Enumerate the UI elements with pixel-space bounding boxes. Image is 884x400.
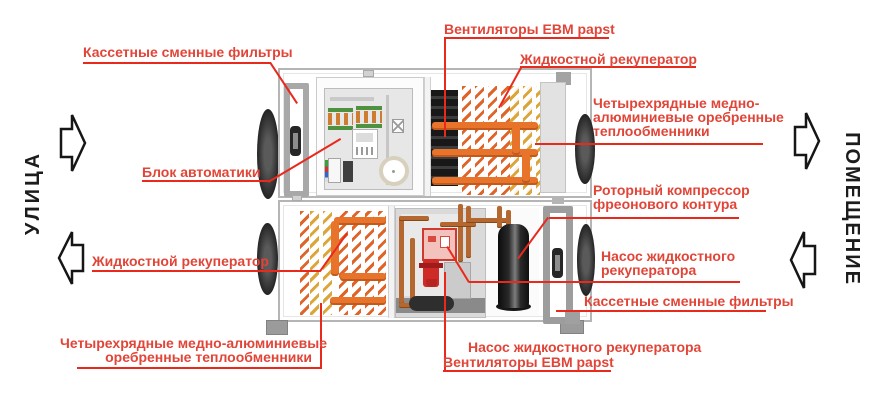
leader-hx-bottom-underline	[77, 367, 322, 369]
leader-filters-top-underline	[83, 62, 271, 64]
coil-bend-pipe-2	[522, 151, 530, 183]
coil-header-pipe-1	[432, 122, 538, 130]
controller-display	[356, 133, 373, 142]
terminal-strip-b	[356, 106, 382, 110]
premises-label: ПОМЕЩЕНИЕ	[840, 119, 864, 299]
wiring-diagram-plate	[392, 119, 404, 133]
coil-b-header-pipe-1	[334, 217, 386, 225]
thermostat-dial-center	[392, 170, 395, 173]
indicator-strip	[325, 160, 328, 182]
copper-pipe-3	[399, 216, 429, 221]
plate-hx-mark	[428, 236, 436, 242]
terminal-strip-b2	[356, 124, 382, 128]
label-liquid-recuperator-left: Жидкостной рекуператор	[92, 254, 269, 268]
contactor-module	[328, 158, 341, 183]
label-hx-right-line1: Четырехрядные медно-	[593, 96, 784, 110]
copper-pipe-1	[399, 216, 404, 304]
airflow-arrow-room-return	[788, 229, 818, 291]
label-rotary-compressor: Роторный компрессор фреонового контура	[593, 183, 750, 211]
duct-collar-top-right	[575, 114, 595, 184]
relay-row-a	[328, 113, 353, 125]
copper-pipe-5	[466, 206, 471, 258]
label-automation: Блок автоматики	[142, 165, 261, 179]
compressor-pipe-2	[497, 206, 502, 228]
mount-tab-mid-left	[292, 195, 302, 201]
coil-bend-pipe-1	[512, 124, 520, 155]
filter-handle-slot-bottom	[555, 255, 560, 271]
label-hx-right-line2: алюминиевые оребренные	[593, 110, 784, 124]
coil-b-header-pipe-3	[330, 297, 386, 305]
label-liquid-recuperator-top: Жидкостной рекуператор	[520, 52, 696, 66]
label-fans-top: Вентиляторы EBM papst	[444, 22, 609, 36]
mount-tab-top	[363, 70, 374, 77]
leader-automation-underline	[142, 180, 270, 182]
leader-fans-top-underline	[444, 37, 609, 39]
cable-duct	[330, 97, 374, 101]
label-heat-exchangers-right: Четырехрядные медно- алюминиевые оребрен…	[593, 96, 784, 138]
unit-foot-left	[266, 320, 288, 335]
leader-fans-top-vertical	[444, 38, 446, 137]
leader-fans-bottom-underline	[443, 370, 611, 372]
street-label: УЛИЦА	[21, 114, 45, 272]
label-filters-top: Кассетные сменные фильтры	[83, 45, 271, 59]
label-hx-bottom-line1: Четырехрядные медно-алюминиевые	[60, 336, 312, 350]
leader-liquid-recup-left-underline	[92, 270, 320, 272]
section-divider-bottom	[388, 206, 395, 318]
duct-collar-top-left	[257, 109, 279, 199]
label-hx-bottom-line2: оребренные теплообменники	[60, 350, 312, 364]
breaker-module	[343, 161, 353, 182]
label-pump-right: Насос жидкостного рекуператора	[601, 249, 735, 277]
terminal-strip-a	[328, 108, 353, 112]
ahu-diagram: УЛИЦА ПОМЕЩЕНИЕ Кассетные сменные фильтр…	[0, 0, 884, 400]
copper-pipe-4	[458, 204, 463, 262]
corner-block-bottom-right	[565, 310, 580, 324]
rotary-compressor	[498, 224, 529, 308]
label-compressor-line1: Роторный компрессор	[593, 183, 750, 197]
label-heat-exchangers-bottom: Четырехрядные медно-алюминиевые оребренн…	[60, 336, 312, 364]
label-filters-right: Кассетные сменные фильтры	[584, 294, 794, 308]
controller-buttons	[356, 147, 373, 155]
coil-b-header-pipe-2	[340, 273, 386, 281]
label-pump-right-line2: рекуператора	[601, 263, 735, 277]
airflow-arrow-street-out	[56, 229, 86, 287]
label-hx-right-line3: теплообменники	[593, 124, 784, 138]
airflow-arrow-room-supply	[792, 109, 822, 173]
leader-pump-right	[469, 281, 740, 283]
pump-flange	[419, 263, 443, 268]
pump-cone	[426, 279, 437, 287]
duct-collar-bottom-right	[577, 224, 595, 296]
airflow-arrow-street-in	[58, 111, 88, 175]
mount-tab-mid-right	[552, 196, 564, 204]
leader-compressor-underline	[549, 217, 739, 219]
muffler-cylinder	[409, 296, 454, 311]
filter-handle-slot-top	[293, 133, 298, 149]
side-panel-top-right	[540, 82, 566, 193]
label-pump-bottom: Насос жидкостного рекуператора	[468, 340, 696, 354]
terminal-strip-a2	[328, 126, 353, 130]
label-fans-bottom: Вентиляторы EBM papst	[443, 355, 611, 369]
section-divider-top	[424, 77, 431, 196]
copper-pipe-2	[410, 238, 415, 300]
label-pump-right-line1: Насос жидкостного	[601, 249, 735, 263]
label-compressor-line2: фреонового контура	[593, 197, 750, 211]
leader-hx-right	[535, 143, 763, 145]
relay-row-b	[356, 111, 382, 123]
leader-filters-right	[556, 310, 766, 312]
